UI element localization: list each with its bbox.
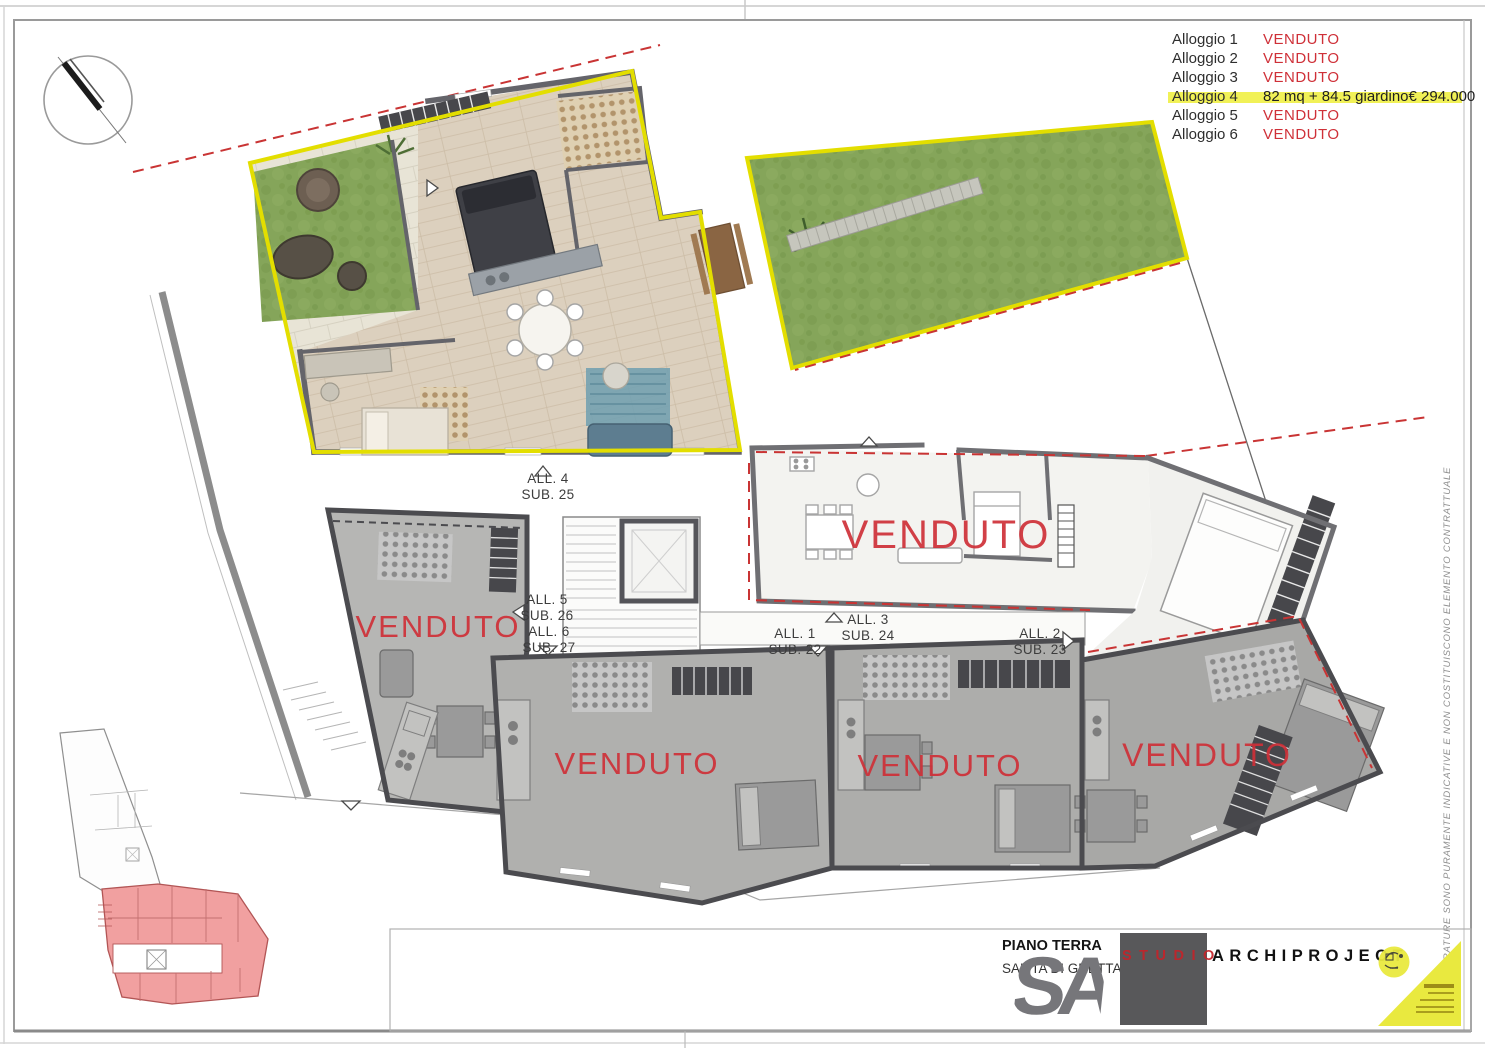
venduto-stamp-all1: VENDUTO (857, 748, 1022, 783)
label-sub-22: SUB. 22 (768, 642, 821, 657)
legend-row-value: VENDUTO (1263, 69, 1340, 86)
label-all-5: ALL. 5 (526, 592, 567, 607)
legend-row-label: Alloggio 6 (1172, 126, 1238, 143)
keyplan-corridor (113, 944, 222, 973)
venduto-stamp-all2: VENDUTO (1122, 737, 1292, 773)
label-all-4: ALL. 4 (527, 471, 569, 486)
label-all-6: ALL. 6 (528, 624, 569, 639)
legend-row-value: VENDUTO (1263, 107, 1340, 124)
label-sub-27: SUB. 27 (522, 640, 575, 655)
agency-stamp-circle (1379, 947, 1410, 978)
metrature-disclaimer: LE METRATURE SONO PURAMENTE INDICATIVE E… (1442, 467, 1453, 1000)
legend-row-label: Alloggio 2 (1172, 50, 1238, 67)
label-sub-24: SUB. 24 (841, 628, 894, 643)
legend-row-label: Alloggio 3 (1172, 69, 1238, 86)
legend-row-value: VENDUTO (1263, 50, 1340, 67)
legend-row-value-price: 82 mq + 84.5 giardino€ 294.000 (1263, 88, 1475, 105)
legend-row-value: VENDUTO (1263, 126, 1340, 143)
label-sub-26: SUB. 26 (520, 608, 573, 623)
label-sub-23: SUB. 23 (1013, 642, 1066, 657)
floor-plan-drawing: ALL. 4 SUB. 25 ALL. 5 SUB. 26 ALL. 6 SUB… (0, 0, 1485, 1050)
venduto-stamp-all3: VENDUTO (842, 513, 1051, 557)
venduto-stamp-all6: VENDUTO (554, 746, 719, 781)
label-sub-25: SUB. 25 (521, 487, 574, 502)
venduto-stamp-all5: VENDUTO (355, 609, 520, 644)
floor-plan-sheet: ALL. 4 SUB. 25 ALL. 5 SUB. 26 ALL. 6 SUB… (0, 0, 1485, 1050)
label-all-1: ALL. 1 (774, 626, 815, 641)
logo-square (1120, 933, 1207, 1025)
legend-row-label: Alloggio 5 (1172, 107, 1238, 124)
label-all-2: ALL. 2 (1019, 626, 1060, 641)
legend-row-label: Alloggio 4 (1172, 88, 1238, 105)
legend-row-value: VENDUTO (1263, 31, 1340, 48)
label-all-3: ALL. 3 (847, 612, 888, 627)
legend-row-label: Alloggio 1 (1172, 31, 1238, 48)
logo-studio-word: STUDIO (1122, 948, 1222, 964)
